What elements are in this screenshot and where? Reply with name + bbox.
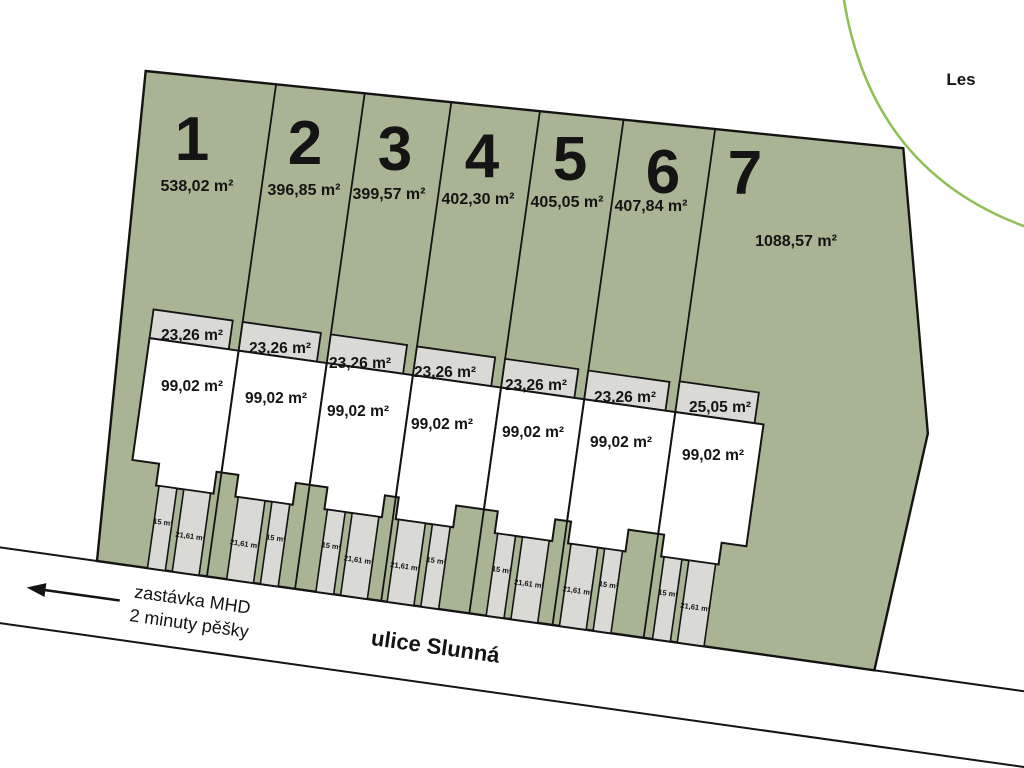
- plot-2-house-label: 99,02 m²: [245, 390, 307, 407]
- plot-1-house-label: 99,02 m²: [161, 378, 223, 395]
- plot-3-house-label: 99,02 m²: [327, 403, 389, 420]
- plot-1-area-label: 538,02 m²: [161, 178, 234, 195]
- plot-7-house: [655, 412, 763, 568]
- plot-4-number: 4: [465, 122, 500, 191]
- plot-7-area-label: 1088,57 m²: [755, 233, 837, 250]
- plot-4-area-label: 402,30 m²: [442, 191, 515, 208]
- plot-6-number: 6: [646, 138, 680, 207]
- plot-6-terrace-label: 23,26 m²: [594, 389, 656, 406]
- plot-5-terrace-label: 23,26 m²: [505, 377, 567, 394]
- plot-2-number: 2: [288, 109, 322, 178]
- site-plan: 15 m² 21,61 m² 21,61 m² 15 m² 15 m² 21,6…: [0, 0, 1024, 768]
- plot-4-terrace-label: 23,26 m²: [414, 364, 476, 381]
- plot-7-number: 7: [728, 139, 762, 208]
- forest-label: Les: [946, 70, 975, 89]
- plot-1-terrace-label: 23,26 m²: [161, 327, 223, 344]
- plot-7-terrace-label: 25,05 m²: [689, 399, 751, 416]
- plot-2-terrace-label: 23,26 m²: [249, 340, 311, 357]
- plot-3-terrace-label: 23,26 m²: [329, 355, 391, 372]
- plot-5-area-label: 405,05 m²: [531, 194, 604, 211]
- plot-4-house-label: 99,02 m²: [411, 416, 473, 433]
- plot-5-number: 5: [553, 125, 587, 194]
- plot-3-number: 3: [378, 115, 412, 184]
- plot-1-number: 1: [175, 105, 209, 174]
- plot-6-house-label: 99,02 m²: [590, 434, 652, 451]
- plot-5-house-label: 99,02 m²: [502, 424, 564, 441]
- plot-6-area-label: 407,84 m²: [615, 198, 688, 215]
- plot-2-area-label: 396,85 m²: [268, 182, 341, 199]
- plot-3-area-label: 399,57 m²: [353, 186, 426, 203]
- plot-7-house-label: 99,02 m²: [682, 447, 744, 464]
